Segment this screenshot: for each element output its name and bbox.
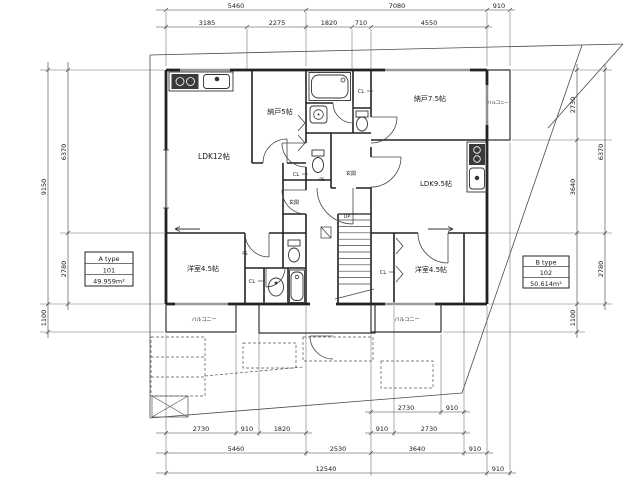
unit-a-type: A type <box>98 255 119 263</box>
floor-plan-drawing: 5460 7080 910 3185 2275 1820 710 4550 91… <box>0 0 640 480</box>
dim-b2-2730: 2730 <box>193 425 210 433</box>
room-label-nando-b: 納戸7.5帖 <box>414 94 446 103</box>
unit-b-type: B type <box>535 259 556 267</box>
dim-top-5460: 5460 <box>228 2 245 10</box>
dim-left-2780: 2780 <box>60 261 68 278</box>
unit-a-number: 101 <box>103 266 115 274</box>
dim-b2-2730b: 2730 <box>421 425 438 433</box>
room-label-bedroom-b: 洋室4.5帖 <box>415 265 447 274</box>
dim-right-2780: 2780 <box>597 261 605 278</box>
dim-b2-910b: 910 <box>376 425 388 433</box>
dim-top-7080: 7080 <box>389 2 406 10</box>
toilet-a-icon <box>288 240 300 262</box>
site-boundary-lines <box>150 44 623 418</box>
dim-left-6370: 6370 <box>60 144 68 161</box>
witness-lines <box>40 12 612 476</box>
bathtub-top-icon <box>309 73 351 101</box>
dimension-lines <box>46 8 607 475</box>
dim-b2-910: 910 <box>241 425 253 433</box>
unit-a-area: 49.959m² <box>93 278 125 286</box>
dim-left-1100: 1100 <box>40 310 48 327</box>
closet-leader-lines <box>258 91 395 281</box>
dim-top2-2275: 2275 <box>269 19 286 27</box>
room-label-ldk-a: LDK12帖 <box>198 151 230 161</box>
room-label-entrance-b: 玄関 <box>346 170 356 177</box>
room-label-bedroom-a: 洋室4.5帖 <box>187 264 219 273</box>
stair-break-line <box>335 289 374 299</box>
dim-b4-12540: 12540 <box>316 465 337 473</box>
dim-b1-2730: 2730 <box>398 404 415 412</box>
toilet-mid-icon <box>312 150 324 173</box>
closet-label: CL <box>293 172 299 178</box>
unit-b-table: B type 102 50.614m² <box>523 256 569 288</box>
room-labels: LDK12帖 納戸5帖 納戸7.5帖 LDK9.5帖 洋室4.5帖 洋室4.5帖… <box>187 89 509 323</box>
dim-right-1100: 1100 <box>569 310 577 327</box>
door-direction-arrows <box>175 227 453 232</box>
dim-b1-910: 910 <box>446 404 458 412</box>
dim-b3-910: 910 <box>469 445 481 453</box>
dim-top2-4550: 4550 <box>421 19 438 27</box>
balcony-label-b: バルコニー <box>395 317 420 323</box>
dim-b3-5460: 5460 <box>228 445 245 453</box>
pipe-space-label: PS <box>242 251 248 257</box>
parking-stall <box>243 343 296 368</box>
kitchen-counter-a-icon <box>169 72 233 91</box>
entrance-porch <box>259 304 375 333</box>
unit-b-number: 102 <box>540 269 552 277</box>
dim-top2-3185: 3185 <box>199 19 216 27</box>
pipe-space-label: PS <box>319 177 325 183</box>
dim-right-6370: 6370 <box>597 144 605 161</box>
room-label-nando-a: 納戸5帖 <box>267 107 292 116</box>
toilet-top-icon <box>356 111 368 131</box>
balcony-label-a: バルコニー <box>192 317 217 323</box>
floor-plan-page: 5460 7080 910 3185 2275 1820 710 4550 91… <box>0 0 640 480</box>
dim-top-910: 910 <box>493 2 505 10</box>
arrow-left-icon <box>175 227 200 232</box>
dim-b3-2530: 2530 <box>330 445 347 453</box>
dim-right-3640: 3640 <box>569 179 577 196</box>
stairs: UP <box>321 214 374 299</box>
unit-a-table: A type 101 49.959m² <box>85 252 133 286</box>
room-label-entrance-a: 玄関 <box>289 199 299 206</box>
closet-label: CL <box>358 89 364 95</box>
washbasin-a-icon <box>269 278 284 296</box>
dim-top2-710: 710 <box>355 19 367 27</box>
washbasin-top-icon <box>310 106 327 123</box>
dimension-ticks <box>46 8 607 475</box>
closet-label: CL <box>380 270 386 276</box>
parking-stall <box>151 337 205 396</box>
dim-right-2730: 2730 <box>569 97 577 114</box>
hatched-box <box>152 396 188 417</box>
kitchen-counter-b-icon <box>467 142 487 192</box>
meter-box-icon <box>321 227 331 238</box>
dim-b3-3640: 3640 <box>409 445 426 453</box>
closet-label: CL <box>249 279 255 285</box>
room-label-ldk-b: LDK9.5帖 <box>420 179 452 188</box>
dim-left-9150: 9150 <box>40 179 48 196</box>
arrow-right-icon <box>428 227 453 232</box>
balcony-label-top: バルコニー <box>487 100 508 106</box>
bathtub-a-icon <box>290 270 305 303</box>
dim-b4-910: 910 <box>492 465 504 473</box>
parking-marks <box>151 337 433 396</box>
stairs-up-label: UP <box>344 214 351 220</box>
dim-top2-1820: 1820 <box>321 19 338 27</box>
parking-stall <box>381 361 433 388</box>
dim-b2-1820: 1820 <box>274 425 291 433</box>
unit-b-area: 50.614m² <box>530 280 562 288</box>
